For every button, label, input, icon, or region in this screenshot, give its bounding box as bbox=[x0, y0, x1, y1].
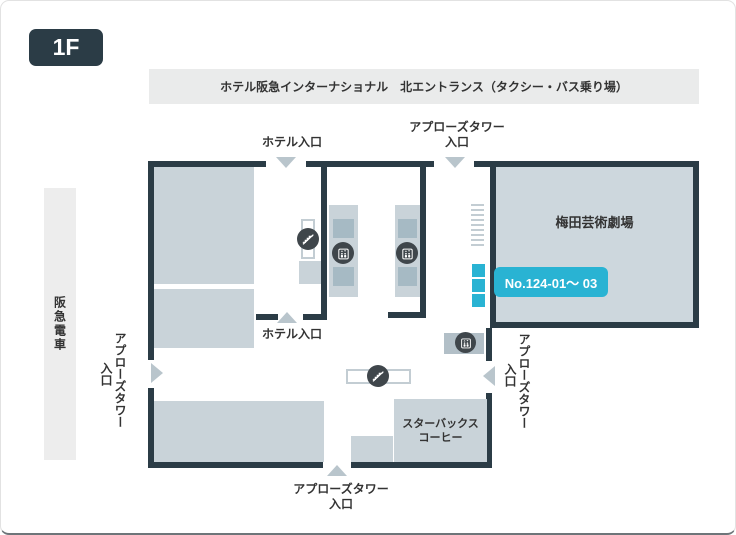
theater-number-badge: No.124-01～ 03 bbox=[494, 267, 608, 297]
hankyu-railway-label: 阪急電車 bbox=[52, 296, 69, 352]
floor-badge-1f[interactable]: 1F bbox=[29, 29, 103, 66]
room-block bbox=[154, 289, 254, 348]
elevator-icon bbox=[396, 242, 418, 264]
entrance-arrow-down-icon bbox=[276, 157, 296, 168]
elevator-icon bbox=[332, 242, 354, 264]
elevator-cab bbox=[398, 219, 417, 238]
entrance-arrow-right-icon bbox=[151, 363, 163, 383]
location-marker-square bbox=[472, 264, 485, 277]
location-marker-square bbox=[472, 294, 485, 307]
entrance-arrow-up-icon bbox=[327, 465, 347, 476]
location-marker-square bbox=[472, 279, 485, 292]
theater-name-label: 梅田芸術劇場 bbox=[490, 212, 699, 231]
starbucks-block: スターバックス コーヒー bbox=[394, 399, 487, 462]
wall-segment bbox=[420, 161, 426, 318]
wall-segment bbox=[486, 328, 492, 361]
wall-segment bbox=[321, 161, 327, 320]
hankyu-railway-bar: 阪急電車 bbox=[44, 188, 76, 460]
applause-entrance-right-label-line1: アプローズタワー bbox=[517, 333, 531, 429]
starbucks-label-line2: コーヒー bbox=[419, 431, 463, 445]
starbucks-label-line1: スターバックス bbox=[402, 417, 479, 431]
theater-block bbox=[490, 161, 699, 328]
applause-entrance-left-label-line2: 入口 bbox=[99, 362, 113, 386]
entrance-arrow-left-icon bbox=[483, 366, 495, 386]
applause-entrance-left-label-line1: アプローズタワー bbox=[113, 332, 127, 428]
wall-segment bbox=[303, 314, 327, 320]
applause-entrance-bottom-label: アプローズタワー 入口 bbox=[291, 482, 391, 512]
room-block bbox=[154, 167, 254, 284]
floor-map-card: 1F ホテル阪急インターナショナル 北エントランス（タクシー・バス乗り場） 阪急… bbox=[0, 0, 736, 535]
wall-segment bbox=[474, 161, 490, 167]
applause-entrance-top-label: アプローズタワー 入口 bbox=[407, 120, 507, 150]
label-line: アプローズタワー bbox=[409, 120, 504, 134]
elevator-cab bbox=[333, 267, 354, 286]
wall-segment bbox=[388, 312, 426, 318]
applause-entrance-right-label-line2: 入口 bbox=[503, 363, 517, 387]
label-line: 入口 bbox=[329, 497, 353, 511]
wall-segment bbox=[256, 314, 278, 320]
room-block bbox=[351, 436, 393, 462]
label-line: 入口 bbox=[445, 135, 469, 149]
wall-segment bbox=[148, 462, 323, 468]
room-block bbox=[299, 261, 321, 284]
wall-segment bbox=[351, 462, 492, 468]
elevator-icon bbox=[455, 332, 476, 353]
room-block bbox=[154, 401, 324, 462]
label-line: アプローズタワー bbox=[293, 482, 388, 496]
stairs-hatch-icon bbox=[471, 204, 484, 249]
hotel-entrance-top-label: ホテル入口 bbox=[242, 135, 342, 150]
entrance-arrow-up-icon bbox=[277, 312, 297, 323]
hotel-entrance-mid-label: ホテル入口 bbox=[242, 327, 342, 342]
elevator-cab bbox=[398, 267, 417, 286]
escalator-icon bbox=[297, 228, 319, 250]
entrance-arrow-down-icon bbox=[445, 157, 465, 168]
escalator-icon bbox=[367, 365, 389, 387]
elevator-cab bbox=[333, 219, 354, 238]
north-entrance-banner: ホテル阪急インターナショナル 北エントランス（タクシー・バス乗り場） bbox=[149, 69, 699, 104]
